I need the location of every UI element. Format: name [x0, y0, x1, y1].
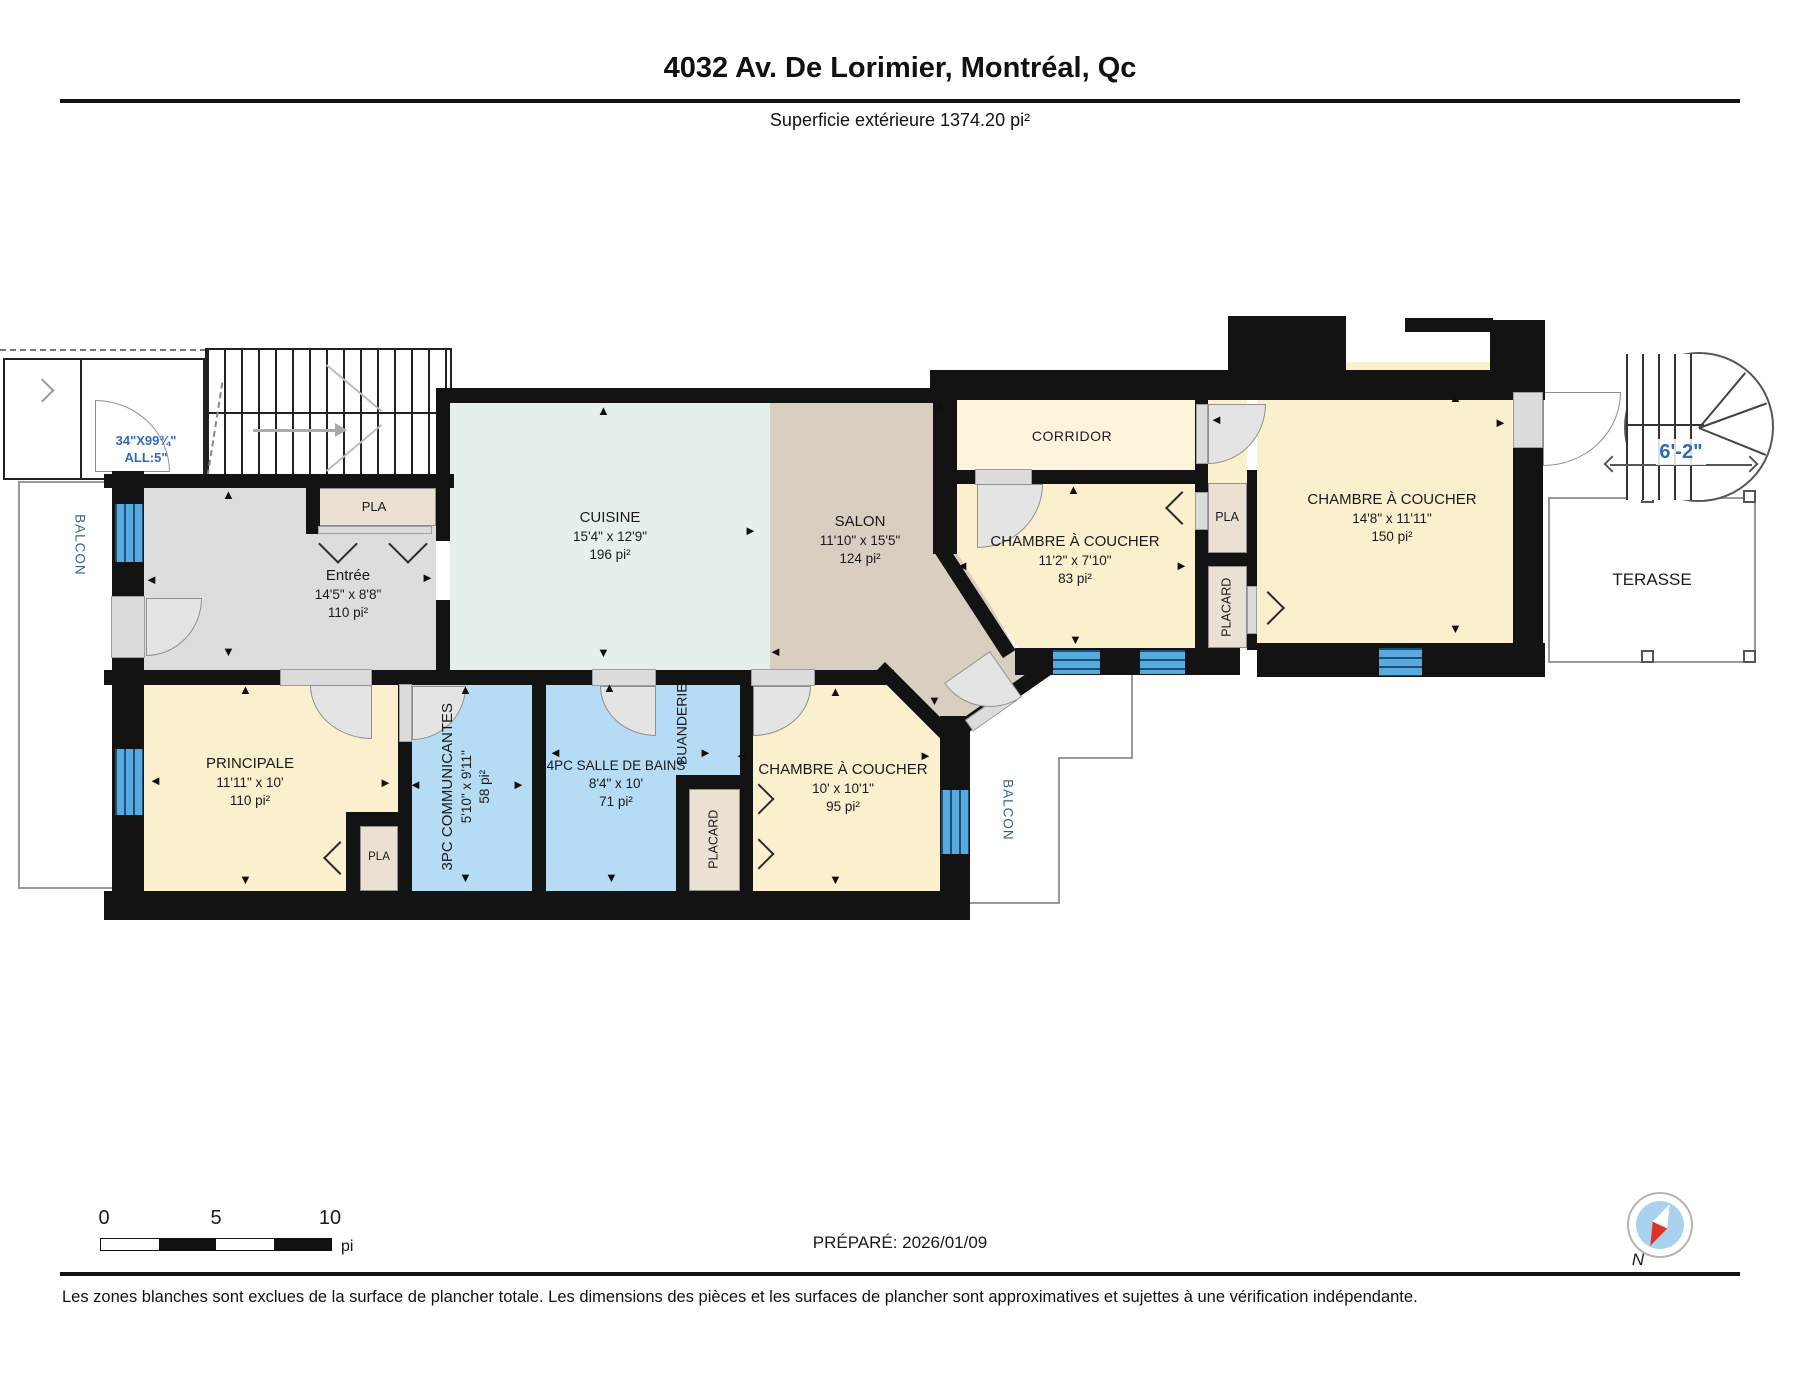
photo-arrow-icon: ◄ — [1210, 413, 1223, 426]
wall — [436, 600, 450, 672]
door-opening — [1196, 404, 1208, 464]
photo-arrow-icon: ▲ — [1449, 391, 1462, 404]
terrace-post — [1641, 650, 1654, 663]
scale-bar — [100, 1238, 332, 1251]
photo-arrow-icon: ▲ — [239, 683, 252, 696]
photo-arrow-icon: ▼ — [222, 645, 235, 658]
header-rule — [60, 99, 1740, 103]
photo-arrow-icon: ◄ — [149, 774, 162, 787]
photo-arrow-icon: ► — [744, 524, 757, 537]
staircase-direction-arrow — [253, 429, 337, 432]
spiral-staircase-treads — [1626, 354, 1704, 500]
exterior-area-subtitle: Superficie extérieure 1374.20 pi² — [0, 110, 1800, 131]
window — [115, 749, 143, 815]
wall — [436, 403, 450, 541]
door-opening — [1195, 492, 1208, 530]
photo-arrow-icon: ▲ — [934, 399, 947, 412]
scale-unit: pi — [341, 1238, 353, 1256]
terrace-door-swing-icon — [1543, 392, 1621, 466]
floor-plan-page: 4032 Av. De Lorimier, Montréal, Qc Super… — [0, 0, 1800, 1391]
photo-arrow-icon: ► — [512, 778, 525, 791]
door-opening — [751, 669, 815, 686]
wall — [532, 683, 546, 893]
balcony-right-outline — [1058, 757, 1133, 759]
wall — [1513, 448, 1543, 674]
photo-arrow-icon: ◄ — [549, 746, 562, 759]
photo-arrow-icon: ▼ — [459, 871, 472, 884]
photo-arrow-icon: ▲ — [829, 685, 842, 698]
photo-arrow-icon: ► — [1494, 416, 1507, 429]
staircase-landing-line — [207, 412, 450, 414]
footer-rule — [60, 1272, 1740, 1276]
dimension-arrow-left-icon — [1604, 456, 1621, 473]
window — [941, 790, 969, 854]
photo-arrow-icon: ▲ — [222, 488, 235, 501]
photo-arrow-icon: ◄ — [956, 559, 969, 572]
photo-arrow-icon: ▼ — [597, 646, 610, 659]
door-opening — [592, 669, 656, 686]
balcony-left-outline — [18, 481, 114, 483]
wall — [1513, 362, 1543, 396]
balcony-right-outline — [964, 902, 1060, 904]
balcony-right-outline — [1058, 757, 1060, 904]
photo-arrow-icon: ▼ — [928, 694, 941, 707]
photo-arrow-icon: ▲ — [1067, 483, 1080, 496]
door-opening — [1513, 392, 1543, 448]
staircase-arrow-head-icon — [335, 423, 347, 437]
photo-arrow-icon: ► — [379, 776, 392, 789]
window — [1379, 648, 1422, 676]
photo-arrow-icon: ◄ — [735, 749, 748, 762]
spiral-staircase-line — [1626, 424, 1704, 426]
photo-arrow-icon: ▲ — [597, 404, 610, 417]
photo-arrow-icon: ▼ — [605, 871, 618, 884]
page-title: 4032 Av. De Lorimier, Montréal, Qc — [0, 52, 1800, 85]
door-opening — [280, 669, 372, 686]
terrace-post — [1743, 650, 1756, 663]
window — [1053, 650, 1100, 674]
door-opening — [399, 684, 412, 742]
overhang-dashed-line — [0, 349, 206, 351]
photo-arrow-icon: ▼ — [239, 873, 252, 886]
photo-arrow-icon: ► — [1175, 559, 1188, 572]
wall — [104, 891, 970, 920]
photo-arrow-icon: ▼ — [1449, 622, 1462, 635]
disclaimer-text: Les zones blanches sont exclues de la su… — [62, 1288, 1418, 1307]
wall — [436, 388, 957, 403]
photo-arrow-icon: ▼ — [1069, 633, 1082, 646]
vestibule-divider-wall — [80, 358, 82, 480]
window — [1140, 650, 1185, 674]
photo-arrow-icon: ◄ — [769, 645, 782, 658]
balcony-right-outline — [1131, 673, 1133, 759]
photo-arrow-icon: ◄ — [145, 573, 158, 586]
window — [115, 504, 143, 562]
photo-arrow-icon: ► — [919, 749, 932, 762]
wall — [1228, 316, 1346, 372]
wall — [104, 474, 454, 488]
wall — [1405, 318, 1493, 332]
photo-arrow-icon: ◄ — [409, 778, 422, 791]
door-opening — [111, 596, 145, 658]
balcony-left-outline — [18, 887, 116, 889]
photo-arrow-icon: ▲ — [603, 681, 616, 694]
photo-arrow-icon: ► — [421, 571, 434, 584]
photo-arrow-icon: ▼ — [829, 873, 842, 886]
balcony-left-outline — [18, 481, 20, 889]
wall — [676, 775, 740, 789]
wall — [1015, 648, 1240, 675]
photo-arrow-icon: ► — [699, 746, 712, 759]
door-opening — [975, 469, 1032, 485]
photo-arrow-icon: ▲ — [459, 683, 472, 696]
terrace-post — [1743, 490, 1756, 503]
